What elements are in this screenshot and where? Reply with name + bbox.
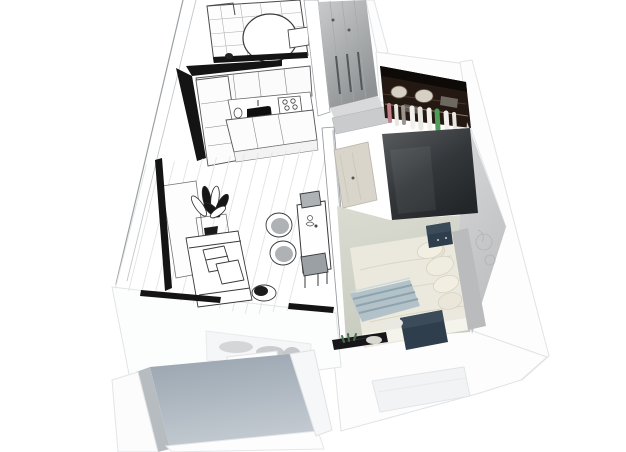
closet-knob bbox=[332, 19, 335, 22]
bathroom-shelf bbox=[288, 27, 309, 48]
kitchen bbox=[176, 60, 318, 166]
floor-rug-tuft bbox=[366, 336, 382, 344]
dining-chair-left-1 bbox=[266, 213, 292, 237]
hat-box bbox=[415, 90, 433, 103]
toilet bbox=[225, 53, 233, 59]
clothes-pink bbox=[389, 105, 390, 121]
door-handle bbox=[352, 177, 355, 180]
floorplan-render bbox=[0, 0, 626, 452]
dining-chair-bottom bbox=[301, 253, 328, 288]
bathroom bbox=[207, 0, 309, 63]
floor-vase bbox=[252, 285, 276, 301]
kitchen-jar bbox=[234, 108, 242, 118]
wardrobe-highlight bbox=[390, 146, 436, 214]
nightstand bbox=[426, 222, 453, 248]
dining-chair-top bbox=[300, 191, 321, 208]
window-interior-blur bbox=[219, 341, 253, 353]
dining-chair-left-2 bbox=[270, 241, 296, 265]
apartment-3d-floorplan bbox=[0, 0, 626, 452]
clothes-green bbox=[437, 111, 438, 129]
hat-box bbox=[391, 86, 407, 98]
dining-set bbox=[266, 191, 331, 288]
closet-knob bbox=[348, 29, 351, 32]
